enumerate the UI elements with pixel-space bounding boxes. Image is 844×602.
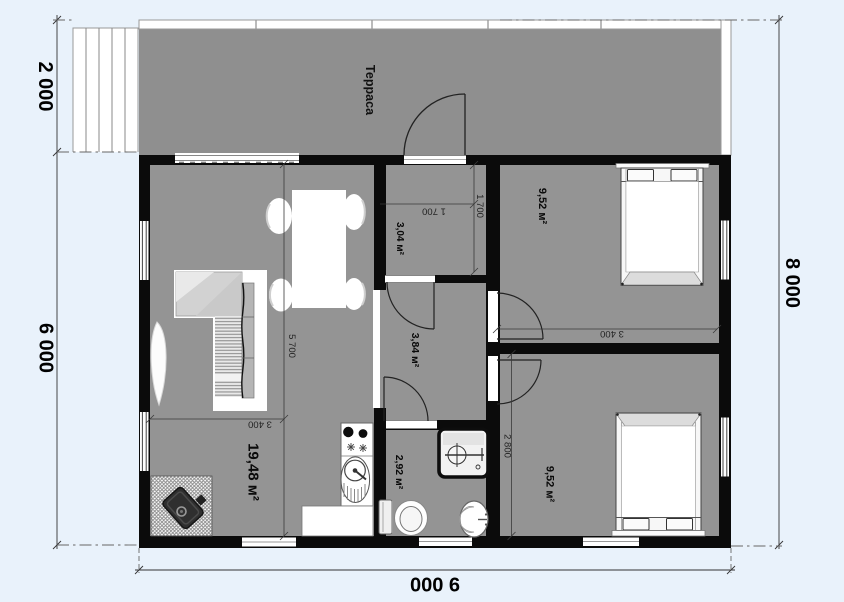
- svg-text:1 700: 1 700: [422, 206, 446, 217]
- svg-text:8 000: 8 000: [781, 258, 803, 308]
- svg-text:2 800: 2 800: [502, 434, 513, 458]
- svg-text:9 000: 9 000: [410, 573, 460, 595]
- svg-text:3,84 м²: 3,84 м²: [409, 333, 421, 368]
- svg-text:2,92 м²: 2,92 м²: [393, 455, 405, 490]
- svg-text:1 700: 1 700: [474, 194, 485, 218]
- svg-text:6 000: 6 000: [35, 323, 57, 373]
- svg-text:Терраса: Терраса: [363, 65, 377, 116]
- svg-text:3 400: 3 400: [600, 328, 624, 339]
- svg-text:3,04 м²: 3,04 м²: [394, 222, 405, 256]
- svg-text:3 400: 3 400: [248, 419, 272, 430]
- svg-text:2 000: 2 000: [34, 61, 56, 111]
- svg-text:19,48 м²: 19,48 м²: [245, 443, 262, 501]
- svg-text:5 700: 5 700: [286, 334, 297, 358]
- svg-text:9,52 м²: 9,52 м²: [544, 466, 556, 503]
- svg-text:9,52 м²: 9,52 м²: [536, 188, 548, 225]
